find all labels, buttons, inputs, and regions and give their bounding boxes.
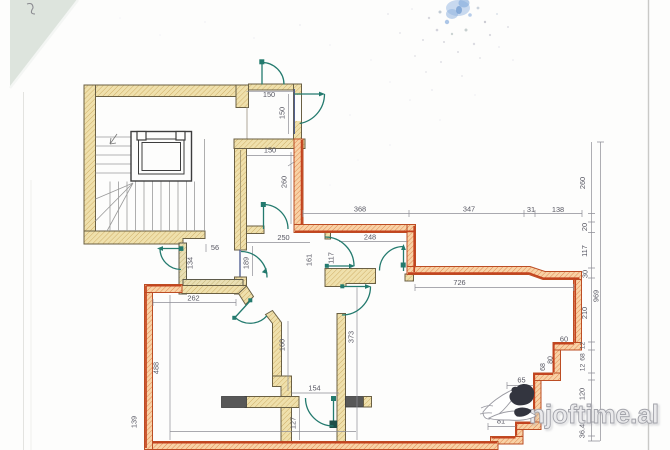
svg-text:210: 210 — [580, 307, 589, 319]
svg-text:154: 154 — [308, 384, 320, 393]
svg-text:12: 12 — [580, 364, 587, 372]
svg-text:68: 68 — [540, 363, 547, 371]
svg-text:250: 250 — [277, 233, 289, 242]
svg-text:30: 30 — [581, 270, 590, 278]
svg-text:150: 150 — [278, 107, 287, 119]
svg-text:373: 373 — [347, 331, 356, 343]
svg-text:127: 127 — [289, 417, 298, 429]
svg-text:260: 260 — [280, 176, 289, 188]
svg-text:117: 117 — [327, 252, 336, 264]
svg-text:150: 150 — [263, 90, 275, 99]
svg-text:488: 488 — [152, 362, 161, 374]
svg-text:134: 134 — [186, 257, 195, 269]
svg-text:20: 20 — [580, 223, 589, 231]
svg-text:347: 347 — [463, 205, 475, 214]
svg-text:969: 969 — [592, 290, 601, 302]
svg-text:60: 60 — [560, 335, 568, 344]
svg-text:12: 12 — [580, 342, 587, 350]
svg-text:139: 139 — [130, 416, 139, 428]
svg-text:189: 189 — [242, 257, 251, 269]
svg-text:65: 65 — [517, 376, 525, 385]
svg-text:56: 56 — [211, 243, 219, 252]
svg-text:80: 80 — [548, 356, 555, 364]
svg-text:160: 160 — [278, 339, 287, 351]
svg-text:117: 117 — [580, 245, 589, 257]
svg-text:150: 150 — [264, 146, 276, 155]
svg-text:68: 68 — [580, 353, 587, 361]
svg-text:138: 138 — [552, 205, 564, 214]
svg-text:248: 248 — [364, 233, 376, 242]
svg-text:njoftime.al: njoftime.al — [529, 399, 659, 429]
svg-text:31: 31 — [527, 205, 535, 214]
svg-text:726: 726 — [453, 278, 465, 287]
svg-text:262: 262 — [187, 294, 199, 303]
svg-text:161: 161 — [305, 254, 314, 266]
svg-text:260: 260 — [578, 177, 587, 189]
svg-text:368: 368 — [354, 205, 366, 214]
